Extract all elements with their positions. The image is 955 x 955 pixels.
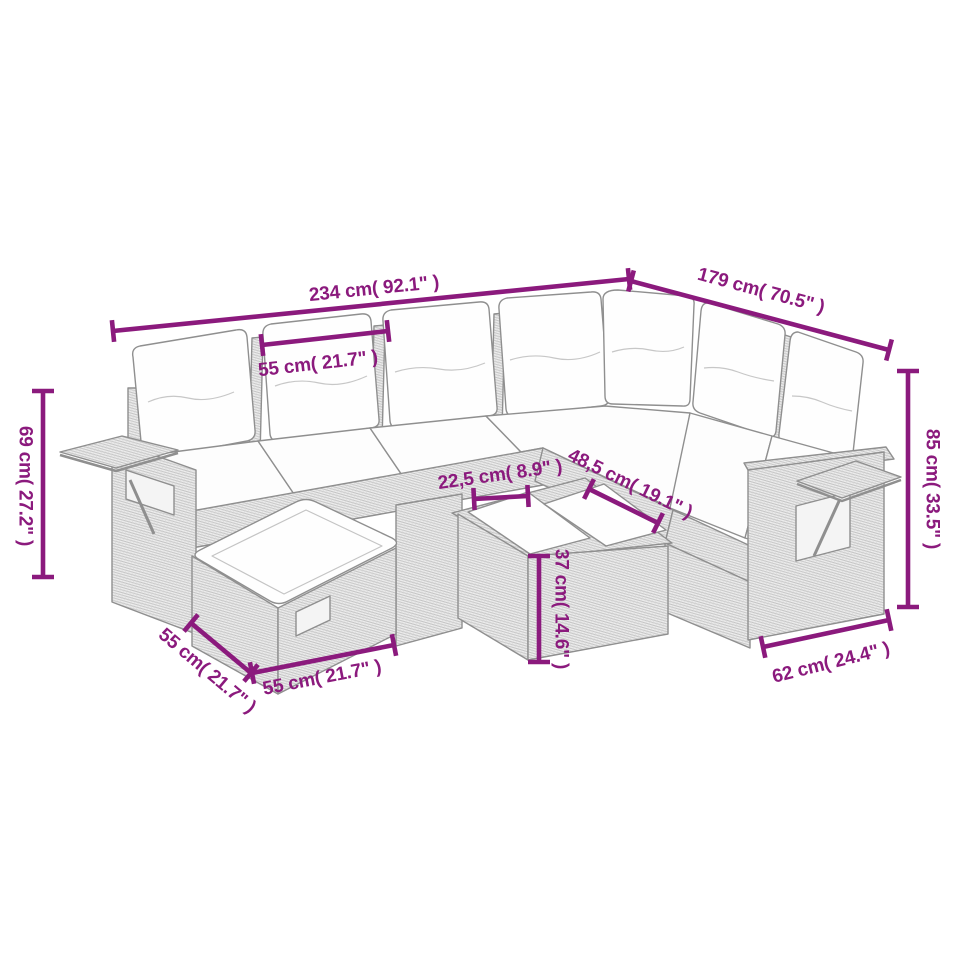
dimension-label-total-height: 85 cm( 33.5" ) (923, 429, 942, 549)
left-armrest (60, 436, 196, 634)
dimension-label-coffee-table-height: 37 cm( 14.6" ) (552, 549, 571, 669)
dimension-line-total-height (897, 371, 919, 607)
right-armrest (744, 447, 901, 640)
corner-sofa (60, 290, 901, 694)
dimension-label-left-section-height: 69 cm( 27.2" ) (16, 426, 35, 546)
product-dimension-image: 234 cm( 92.1" ) 179 cm( 70.5" ) 55 cm( 2… (0, 0, 955, 955)
